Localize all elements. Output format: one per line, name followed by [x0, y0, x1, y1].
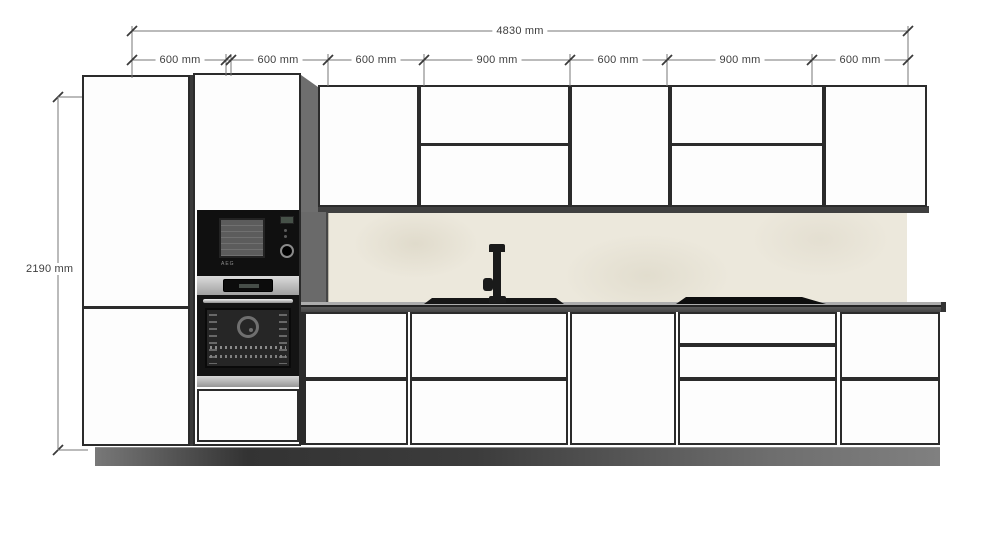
faucet-handle[interactable]: [483, 278, 493, 291]
wall-cabinet-3-door[interactable]: [570, 85, 670, 207]
oven-control-panel[interactable]: [197, 276, 299, 295]
dim-segment-6-label: 900 mm: [716, 54, 765, 66]
tall-unit-left-top-door[interactable]: [84, 77, 188, 306]
oven-fan-hub: [249, 328, 253, 332]
oven-handle[interactable]: [203, 299, 293, 303]
backsplash: [328, 212, 907, 303]
wall-cabinet-4[interactable]: [670, 85, 824, 207]
base-cabinet-5-drawer-top[interactable]: [840, 312, 940, 379]
dim-segment-5-label: 600 mm: [594, 54, 643, 66]
under-cabinet-shadow: [318, 206, 929, 213]
base-cabinet-3-door[interactable]: [570, 312, 676, 445]
wall-cabinet-4-door-divider: [672, 143, 822, 146]
dim-segment-3-label: 600 mm: [352, 54, 401, 66]
plinth: [95, 447, 940, 466]
hob-base-cabinet-drawer-3[interactable]: [678, 379, 837, 445]
wall-cabinet-5-door[interactable]: [824, 85, 927, 207]
oven-fan: [237, 316, 259, 338]
sink-base-cabinet-front-top[interactable]: [410, 312, 568, 379]
dim-segment-1-label: 600 mm: [156, 54, 205, 66]
dim-segment-2-label: 600 mm: [254, 54, 303, 66]
oven-housing-bottom-drawer[interactable]: [197, 389, 299, 442]
oven-display: [223, 279, 273, 292]
oven-display-digits: [239, 284, 259, 288]
oven-rack-lower: [210, 355, 286, 358]
tall-unit-left[interactable]: [82, 75, 190, 446]
sink-base-cabinet-front-bottom[interactable]: [410, 379, 568, 445]
dim-segment-4-label: 900 mm: [473, 54, 522, 66]
faucet-base: [489, 296, 506, 303]
faucet-body[interactable]: [493, 250, 501, 302]
oven[interactable]: [197, 295, 299, 376]
base-cabinet-5-drawer-bottom[interactable]: [840, 379, 940, 445]
dim-segment-7-label: 600 mm: [836, 54, 885, 66]
hob[interactable]: [676, 297, 826, 304]
kitchen-elevation-canvas: AEG: [0, 0, 1000, 547]
tall-unit-oven-housing[interactable]: AEG: [193, 73, 301, 446]
hob-base-cabinet-drawer-1[interactable]: [678, 312, 837, 345]
microwave-window: [219, 218, 265, 258]
tall-unit-side-panel-lower: [301, 212, 328, 303]
wall-cabinet-1-door[interactable]: [318, 85, 419, 207]
countertop: [301, 302, 946, 312]
base-cabinet-1-drawer-top[interactable]: [304, 312, 408, 379]
countertop-right-edge: [941, 302, 946, 312]
tall-unit-side-panel-upper: [301, 75, 318, 212]
wall-cabinet-2-door-divider: [421, 143, 568, 146]
oven-window: [205, 308, 291, 368]
dim-height-label: 2190 mm: [26, 263, 73, 275]
microwave-knob[interactable]: [280, 244, 294, 258]
wall-cabinet-2[interactable]: [419, 85, 570, 207]
dim-total-width-label: 4830 mm: [492, 25, 547, 37]
microwave-display: [280, 216, 294, 224]
tall-unit-left-bottom-door[interactable]: [84, 309, 188, 444]
oven-bottom-trim: [197, 376, 299, 387]
oven-housing-top-door[interactable]: [195, 75, 299, 210]
oven-rack-upper: [210, 346, 286, 349]
base-cabinet-1-drawer-bottom[interactable]: [304, 379, 408, 445]
microwave-button[interactable]: [284, 229, 287, 232]
microwave[interactable]: AEG: [197, 210, 299, 276]
microwave-brand-label: AEG: [221, 261, 235, 267]
microwave-button[interactable]: [284, 235, 287, 238]
hob-base-cabinet-drawer-2[interactable]: [678, 345, 837, 379]
